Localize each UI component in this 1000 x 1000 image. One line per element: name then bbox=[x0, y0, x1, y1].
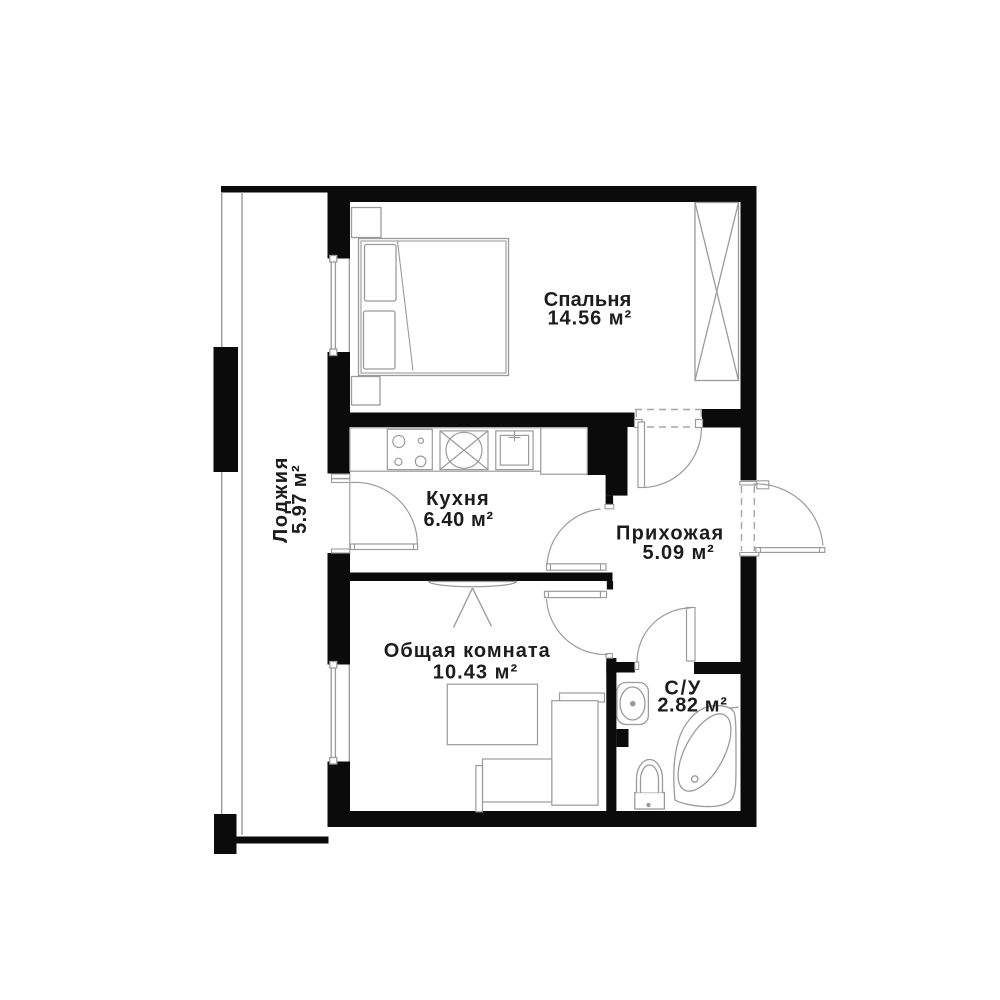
svg-text:10.43 м²: 10.43 м² bbox=[433, 662, 518, 684]
svg-text:2.82 м²: 2.82 м² bbox=[657, 695, 727, 717]
svg-text:Кухня: Кухня bbox=[426, 488, 489, 510]
svg-text:6.40 м²: 6.40 м² bbox=[424, 509, 494, 531]
svg-text:14.56 м²: 14.56 м² bbox=[547, 307, 632, 329]
svg-text:5.09 м²: 5.09 м² bbox=[642, 542, 714, 564]
svg-text:Общая комната: Общая комната bbox=[384, 640, 551, 662]
svg-text:5.97 м²: 5.97 м² bbox=[289, 465, 311, 534]
